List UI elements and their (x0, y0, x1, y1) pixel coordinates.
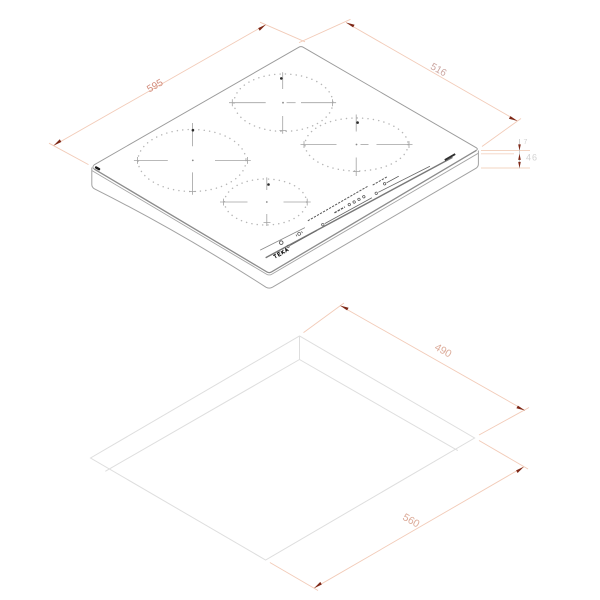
svg-text:7: 7 (524, 139, 528, 146)
svg-text:46: 46 (526, 153, 538, 163)
